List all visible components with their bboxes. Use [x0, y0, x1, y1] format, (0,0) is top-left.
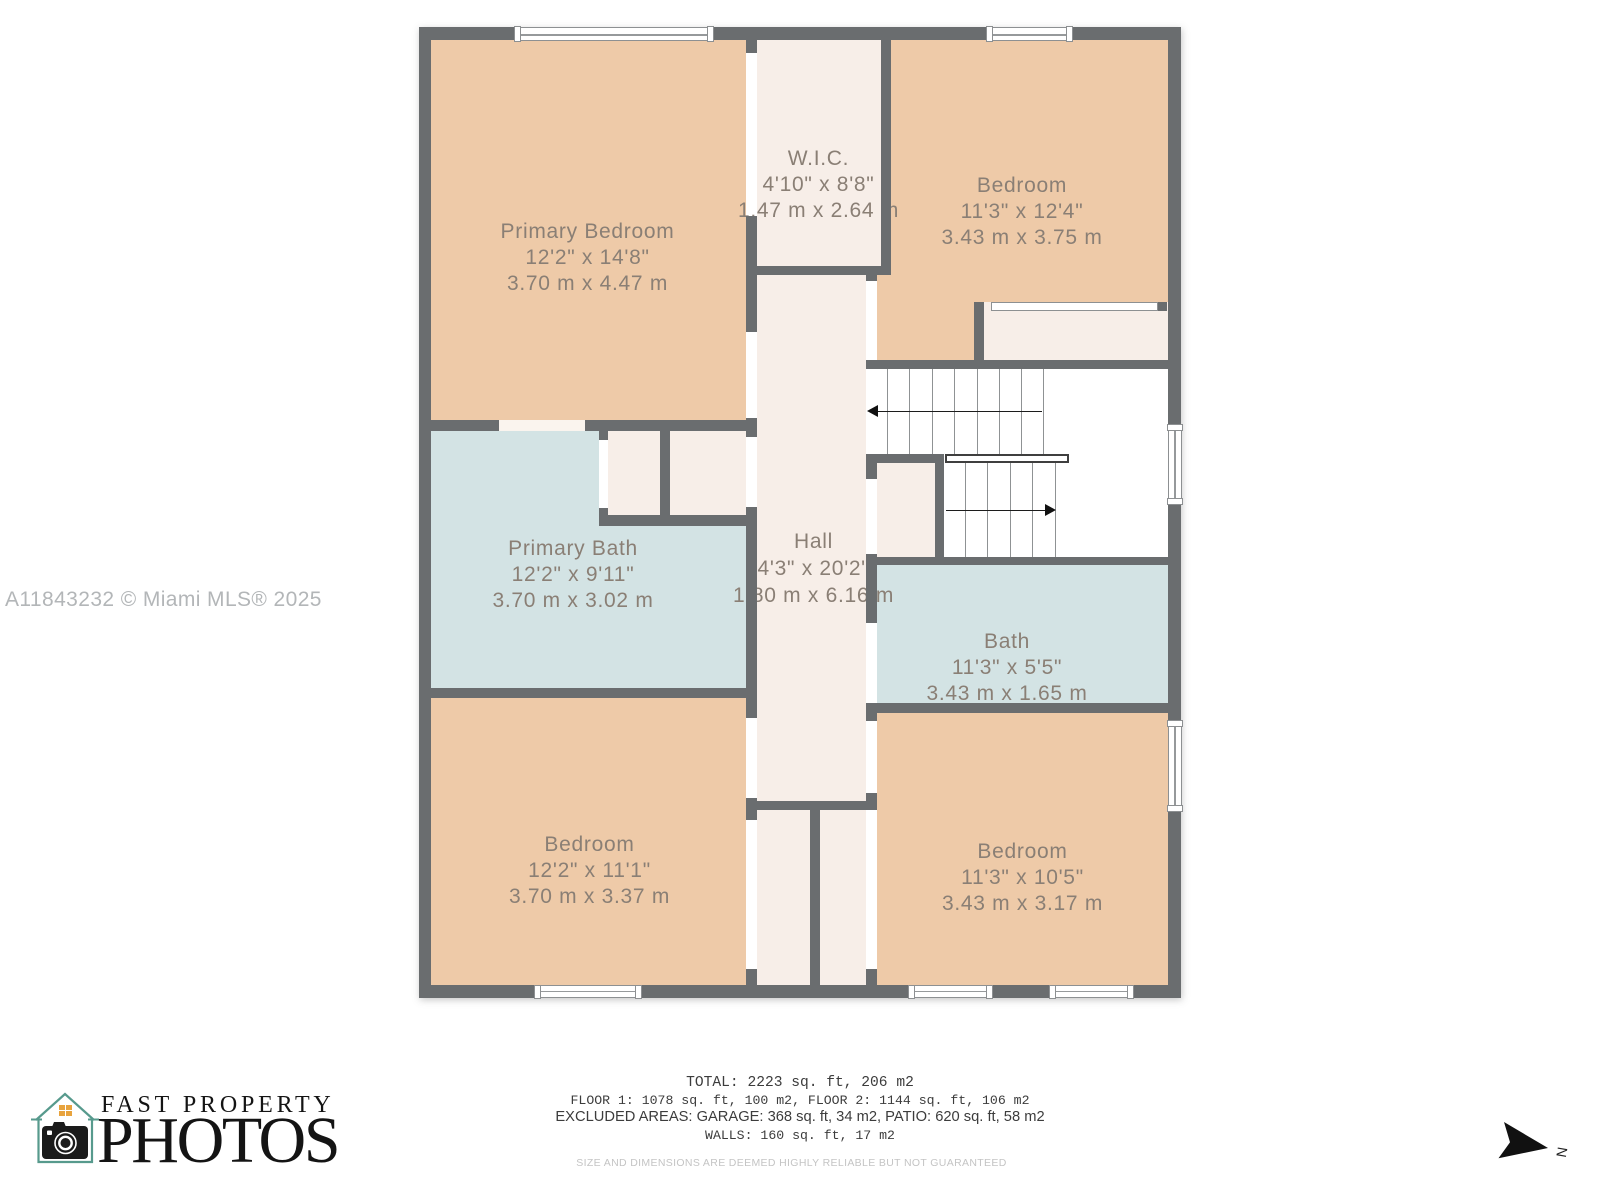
svg-text:N: N [1553, 1146, 1571, 1159]
